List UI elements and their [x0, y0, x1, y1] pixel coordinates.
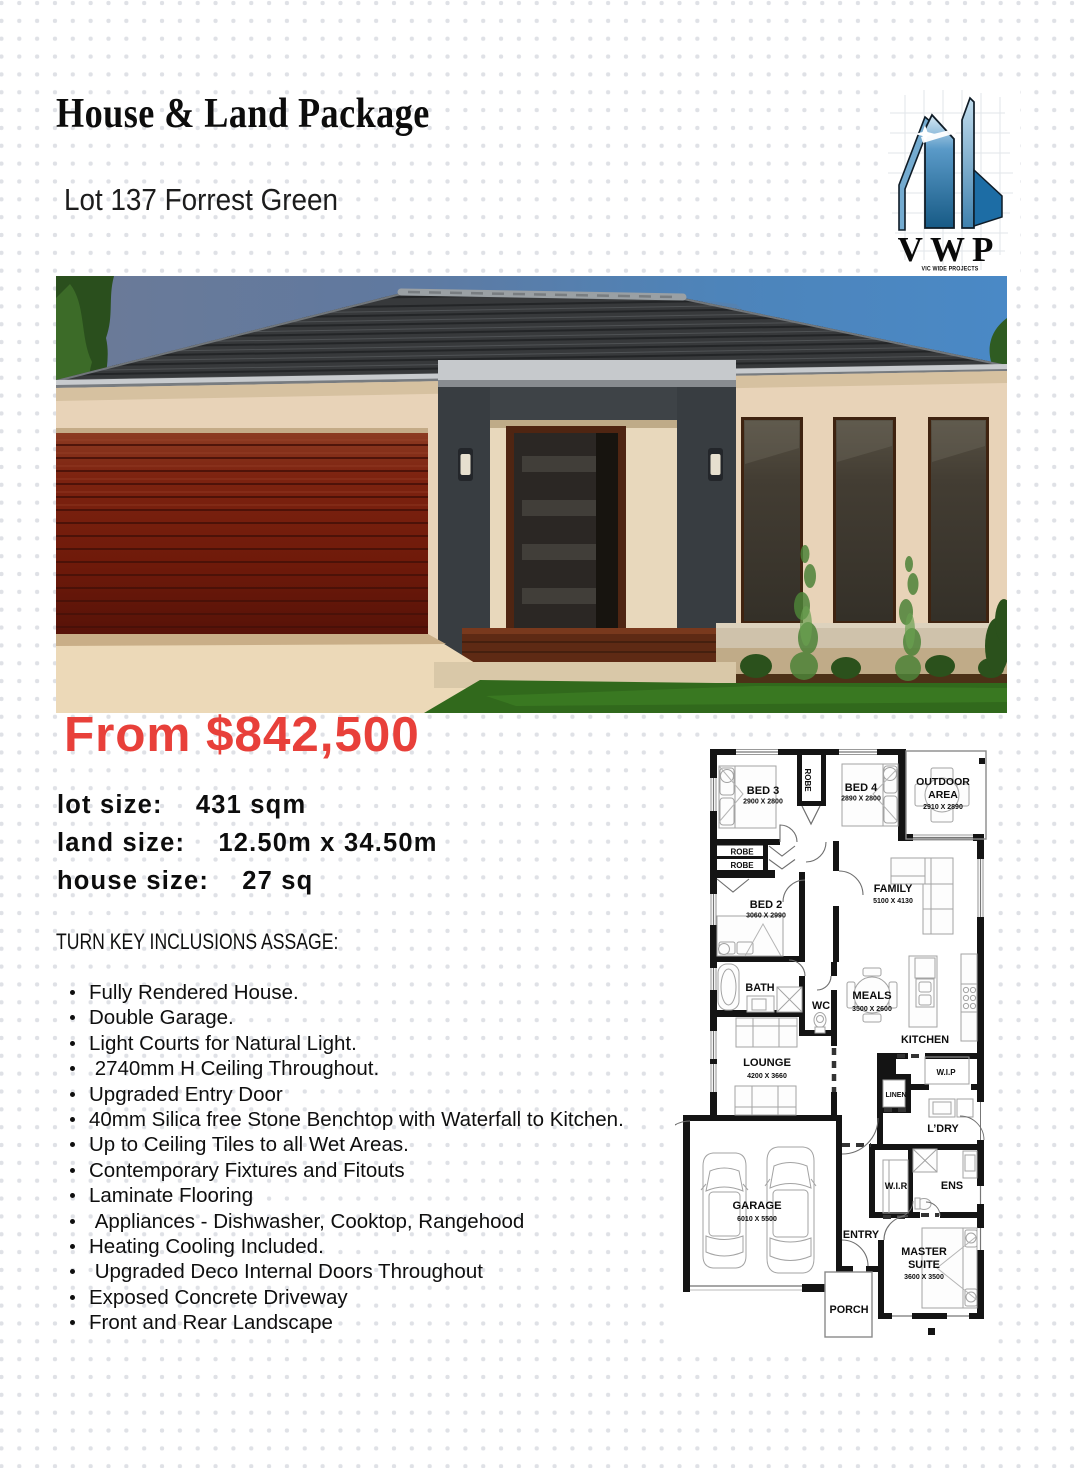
- svg-text:ROBE: ROBE: [730, 848, 754, 857]
- svg-text:VWP: VWP: [898, 230, 1001, 269]
- svg-text:VIC WIDE PROJECTS: VIC WIDE PROJECTS: [922, 266, 979, 273]
- svg-text:3500 X 2600: 3500 X 2600: [852, 1006, 892, 1013]
- svg-text:OUTDOOR: OUTDOOR: [916, 776, 970, 788]
- svg-text:ROBE: ROBE: [803, 768, 812, 792]
- svg-text:WC: WC: [812, 1000, 830, 1012]
- svg-text:AREA: AREA: [928, 789, 958, 801]
- svg-text:BED 3: BED 3: [747, 785, 779, 797]
- svg-text:2910 X 2890: 2910 X 2890: [923, 804, 963, 811]
- svg-text:4200 X 3660: 4200 X 3660: [747, 1073, 787, 1080]
- svg-text:KITCHEN: KITCHEN: [901, 1034, 949, 1046]
- svg-text:LOUNGE: LOUNGE: [743, 1057, 791, 1069]
- svg-text:3600 X 3500: 3600 X 3500: [904, 1274, 944, 1281]
- svg-text:6010 X 5500: 6010 X 5500: [737, 1216, 777, 1223]
- svg-text:GARAGE: GARAGE: [732, 1200, 782, 1212]
- svg-text:BATH: BATH: [745, 982, 774, 994]
- svg-text:W.I.P: W.I.P: [936, 1068, 956, 1077]
- svg-text:3060 X 2990: 3060 X 2990: [746, 913, 786, 920]
- svg-text:5100 X 4130: 5100 X 4130: [873, 898, 913, 905]
- svg-text:ROBE: ROBE: [730, 861, 754, 870]
- svg-text:BED 4: BED 4: [845, 782, 878, 794]
- svg-text:ENTRY: ENTRY: [843, 1229, 880, 1241]
- svg-text:2890 X 2800: 2890 X 2800: [841, 796, 881, 803]
- svg-text:PORCH: PORCH: [830, 1304, 869, 1316]
- svg-text:BED 2: BED 2: [750, 899, 782, 911]
- svg-text:ENS: ENS: [941, 1180, 963, 1192]
- svg-text:MASTER: MASTER: [901, 1246, 947, 1258]
- svg-text:MEALS: MEALS: [852, 990, 892, 1002]
- svg-text:SUITE: SUITE: [908, 1259, 940, 1271]
- svg-text:L’DRY: L’DRY: [927, 1123, 959, 1135]
- svg-text:FAMILY: FAMILY: [874, 883, 913, 895]
- svg-text:LINEN: LINEN: [886, 1092, 907, 1099]
- svg-text:W.I.R: W.I.R: [885, 1181, 908, 1191]
- svg-text:2900 X 2800: 2900 X 2800: [743, 799, 783, 806]
